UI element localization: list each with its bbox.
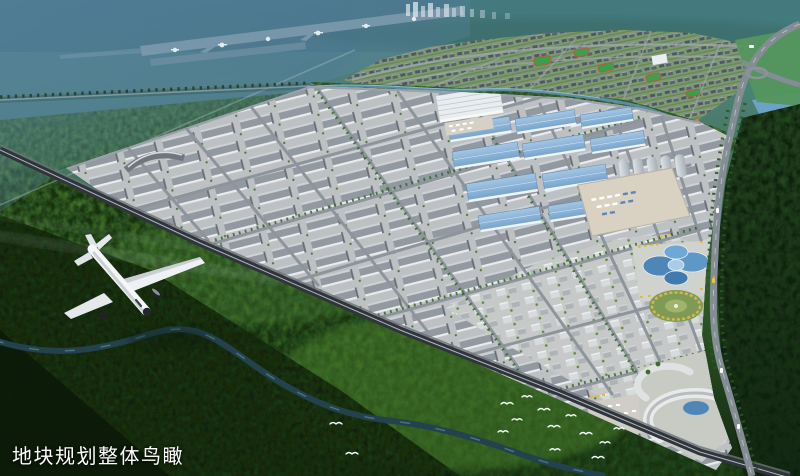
- caption-text: 地块规划整体鸟瞰: [12, 440, 184, 469]
- circular-plaza: [649, 290, 703, 322]
- aerial-rendering: 地块规划整体鸟瞰: [0, 0, 800, 476]
- rendering-canvas: [0, 0, 800, 476]
